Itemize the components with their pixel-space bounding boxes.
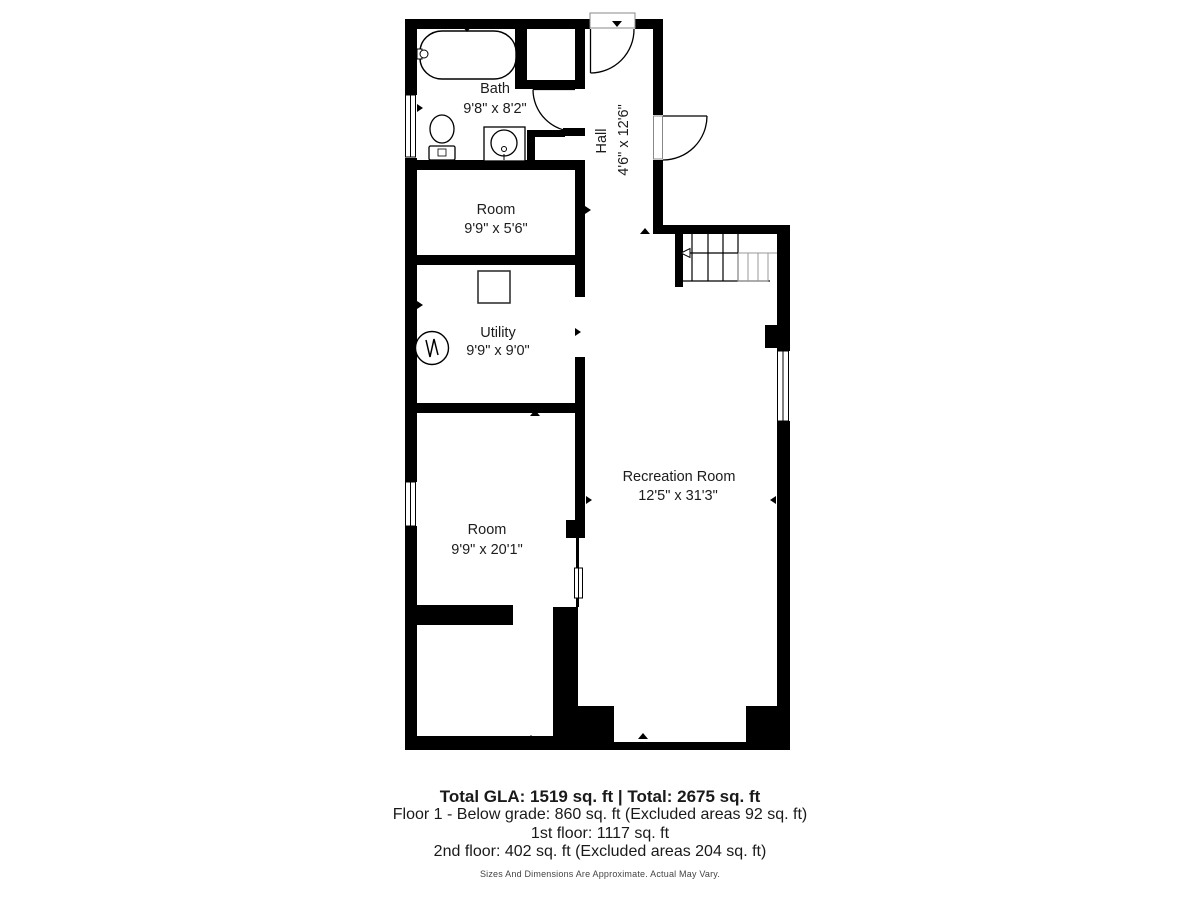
dimension-marker — [586, 496, 592, 504]
side-exterior-door — [654, 116, 708, 160]
floorplan-page: Bath 9'8" x 8'2" Hall 4'6" x 12'6" Room … — [0, 0, 1200, 900]
room-dims-utility: 9'9" x 9'0" — [466, 343, 529, 359]
wall-segment — [575, 413, 585, 520]
disclaimer-text: Sizes And Dimensions Are Approximate. Ac… — [0, 869, 1200, 879]
door-arc — [591, 29, 635, 73]
wall-segment — [553, 607, 578, 736]
door-arc — [663, 116, 707, 160]
room-label-utility: Utility — [480, 325, 516, 341]
dimension-marker — [770, 496, 776, 504]
stair-direction-arrow — [681, 249, 738, 258]
entry-door — [590, 13, 635, 73]
pump-icon — [416, 332, 449, 365]
first-floor-line: 1st floor: 1117 sq. ft — [0, 825, 1200, 844]
room-dims-recreation: 12'5" x 31'3" — [638, 488, 718, 504]
wall-segment — [405, 19, 590, 29]
dimension-marker — [417, 104, 423, 112]
floor1-line: Floor 1 - Below grade: 860 sq. ft (Exclu… — [0, 806, 1200, 825]
wall-segment — [527, 130, 565, 137]
window-icon — [575, 568, 583, 598]
wall-segment — [566, 520, 585, 538]
wall-segment — [405, 605, 513, 625]
room-label-small-room: Room — [477, 202, 516, 218]
wall-segment — [653, 160, 663, 234]
window-icon — [406, 482, 416, 526]
door-arc — [533, 90, 575, 132]
room-dims-large-room: 9'9" x 20'1" — [451, 542, 522, 558]
door-threshold — [654, 116, 663, 159]
dimension-marker — [575, 328, 581, 336]
wall-segment — [575, 170, 585, 297]
window-icon — [406, 95, 416, 157]
door-threshold — [590, 13, 635, 28]
wall-segment — [515, 80, 585, 89]
wall-segment — [575, 19, 585, 89]
bath-door — [533, 90, 575, 132]
wall-segment — [653, 19, 663, 115]
second-floor-line: 2nd floor: 402 sq. ft (Excluded areas 20… — [0, 843, 1200, 862]
wall-segment — [777, 421, 790, 750]
total-gla-line: Total GLA: 1519 sq. ft | Total: 2675 sq.… — [0, 787, 1200, 806]
area-summary: Total GLA: 1519 sq. ft | Total: 2675 sq.… — [0, 787, 1200, 879]
wall-segment — [765, 325, 777, 348]
wall-segment — [405, 255, 585, 265]
room-label-bath: Bath — [480, 81, 510, 97]
room-dims-bath: 9'8" x 8'2" — [463, 101, 526, 117]
wall-segment — [527, 137, 535, 163]
dimension-marker — [640, 228, 650, 234]
windows — [406, 95, 789, 598]
room-label-large-room: Room — [468, 522, 507, 538]
room-label-recreation: Recreation Room — [623, 469, 736, 485]
wall-segment — [675, 234, 683, 287]
floorplan-drawing: Bath 9'8" x 8'2" Hall 4'6" x 12'6" Room … — [0, 0, 1200, 900]
dimension-marker — [417, 301, 423, 309]
toilet-icon — [429, 115, 455, 160]
bottom-recess — [614, 706, 746, 742]
furnace-icon — [478, 271, 510, 303]
stairs-icon — [681, 234, 777, 281]
bathtub-icon — [417, 31, 516, 79]
wall-segment — [777, 234, 790, 351]
wall-segment — [515, 29, 527, 80]
sink-icon — [484, 127, 525, 161]
room-dims-hall: 4'6" x 12'6" — [616, 104, 632, 175]
dimension-marker — [585, 206, 591, 214]
window-icon — [778, 351, 789, 421]
room-dims-small-room: 9'9" x 5'6" — [464, 221, 527, 237]
wall-segment — [575, 357, 585, 403]
room-label-hall: Hall — [594, 129, 610, 154]
wall-segment — [653, 225, 790, 234]
